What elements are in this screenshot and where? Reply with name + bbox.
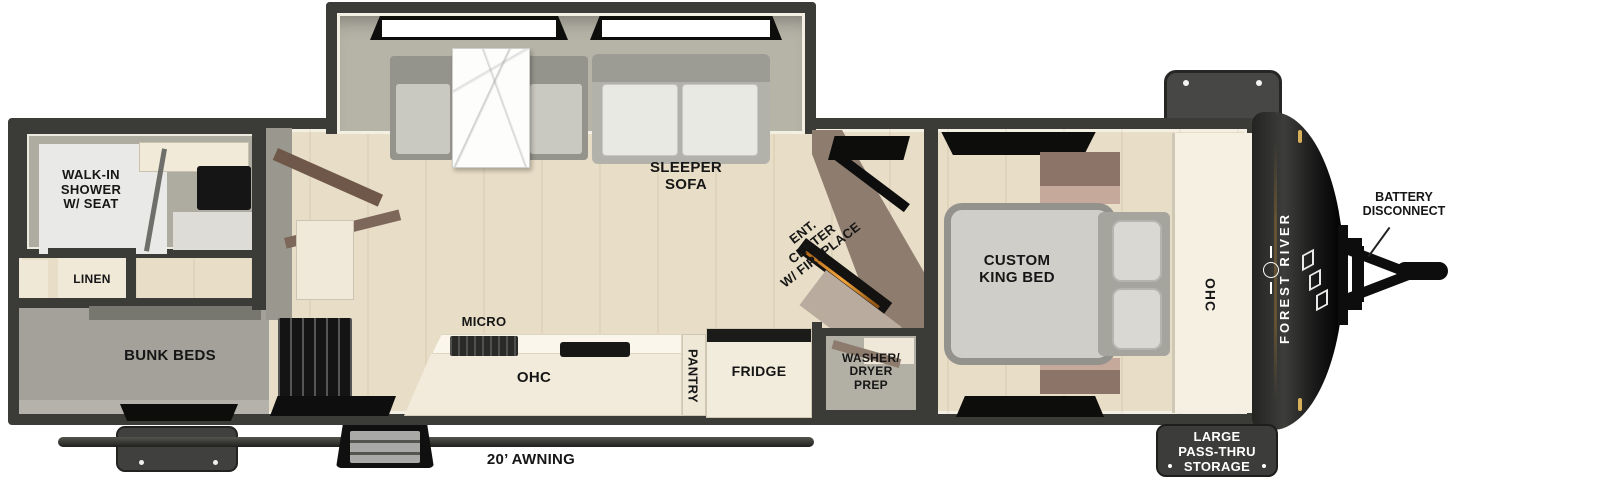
brand-label: FOREST RIVER bbox=[1278, 170, 1293, 386]
wardrobe-cabinet bbox=[296, 220, 354, 300]
dresser bbox=[278, 318, 352, 406]
bedroom-wall bbox=[924, 125, 938, 418]
slide-window-icon bbox=[590, 16, 782, 40]
pillow-icon bbox=[1112, 220, 1162, 282]
storage-rivet-icon bbox=[1183, 80, 1189, 86]
battery-disconnect-label: BATTERY DISCONNECT bbox=[1346, 190, 1462, 218]
king-bed-label: CUSTOM KING BED bbox=[952, 253, 1082, 287]
micro-label: MICRO bbox=[446, 315, 522, 330]
marker-light-icon bbox=[1298, 130, 1302, 143]
storage-rivet-icon bbox=[1256, 80, 1262, 86]
hitch-frame bbox=[1352, 246, 1364, 302]
sleeper-sofa-label: SLEEPER SOFA bbox=[628, 160, 744, 194]
bedroom-window-icon bbox=[956, 396, 1104, 417]
cooktop-icon bbox=[560, 342, 630, 357]
microwave-icon bbox=[450, 336, 518, 356]
hitch-coupler bbox=[1396, 262, 1448, 280]
ohc-kitchen-label: OHC bbox=[502, 370, 566, 387]
pillow-icon bbox=[1112, 288, 1162, 350]
entry-door-well bbox=[270, 396, 396, 416]
storage-rivet-icon bbox=[213, 460, 218, 465]
toilet-icon bbox=[197, 166, 251, 210]
marker-light-icon bbox=[1298, 398, 1302, 411]
nightstand bbox=[1040, 152, 1120, 204]
awning-label: 20’ AWNING bbox=[466, 452, 596, 469]
linen-label: LINEN bbox=[56, 273, 128, 286]
floorplan: SLEEPER SOFA WALK-IN SHOWER W/ SEAT LINE… bbox=[0, 0, 1600, 477]
bunk-beds-label: BUNK BEDS bbox=[100, 348, 240, 365]
pantry-label: PANTRY bbox=[685, 336, 700, 416]
bunk-window-icon bbox=[120, 404, 238, 421]
washer-dryer-label: WASHER/ DRYER PREP bbox=[824, 352, 918, 392]
dinette-bench bbox=[526, 56, 588, 160]
awning-rail bbox=[58, 437, 814, 447]
sleeper-sofa bbox=[592, 54, 770, 164]
ohc-bedroom-label: OHC bbox=[1202, 250, 1218, 340]
callout-line bbox=[1368, 227, 1391, 257]
entry-window-icon bbox=[828, 136, 910, 160]
storage-rivet-icon bbox=[139, 460, 144, 465]
fridge-label: FRIDGE bbox=[712, 364, 806, 380]
dinette-table bbox=[452, 48, 530, 168]
forest-river-logo-icon bbox=[1270, 282, 1272, 294]
linen-wall bbox=[48, 248, 136, 258]
dinette-bench bbox=[390, 56, 454, 160]
forest-river-logo-icon bbox=[1270, 246, 1272, 258]
entry-steps bbox=[336, 424, 434, 468]
walk-in-shower-label: WALK-IN SHOWER W/ SEAT bbox=[36, 168, 146, 212]
slide-window-icon bbox=[370, 16, 568, 40]
bathroom-wall bbox=[252, 125, 266, 310]
pass-thru-storage-label: LARGE PASS-THRU STORAGE bbox=[1158, 430, 1276, 475]
rear-storage-compartment bbox=[116, 426, 238, 472]
